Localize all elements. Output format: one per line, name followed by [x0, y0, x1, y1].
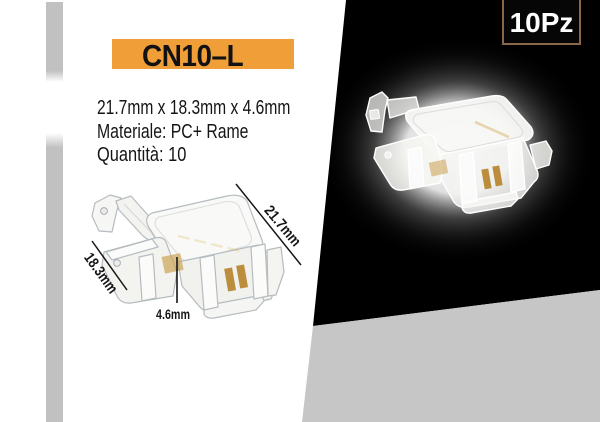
- svg-text:4.6mm: 4.6mm: [156, 306, 190, 322]
